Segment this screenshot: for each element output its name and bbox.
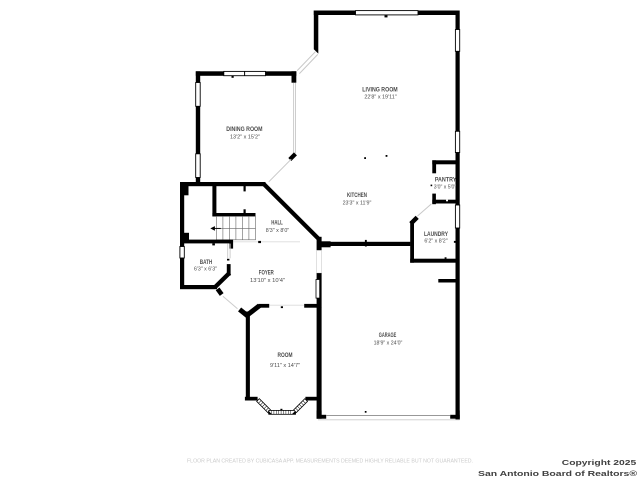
svg-text:San Antonio Board of Realtors®: San Antonio Board of Realtors® bbox=[478, 469, 637, 478]
svg-text:Copyright 2025: Copyright 2025 bbox=[562, 458, 637, 467]
svg-text:LAUNDRY: LAUNDRY bbox=[424, 232, 448, 238]
svg-text:8'3" x 8'0": 8'3" x 8'0" bbox=[266, 228, 289, 234]
svg-text:BATH: BATH bbox=[200, 260, 213, 266]
svg-text:6'2" x 8'2": 6'2" x 8'2" bbox=[424, 239, 447, 245]
svg-text:13'10" x 10'4": 13'10" x 10'4" bbox=[250, 278, 285, 284]
svg-text:18'9" x 24'0": 18'9" x 24'0" bbox=[374, 341, 403, 347]
svg-text:FOYER: FOYER bbox=[259, 271, 274, 277]
svg-text:9'11" x 14'7": 9'11" x 14'7" bbox=[270, 363, 300, 369]
svg-text:DINING ROOM: DINING ROOM bbox=[226, 127, 262, 133]
svg-text:23'3" x 11'9": 23'3" x 11'9" bbox=[343, 201, 372, 207]
svg-text:6'3" x 6'3": 6'3" x 6'3" bbox=[194, 267, 217, 273]
svg-text:PANTRY: PANTRY bbox=[435, 178, 457, 184]
svg-text:22'8" x 19'11": 22'8" x 19'11" bbox=[364, 95, 396, 101]
svg-text:HALL: HALL bbox=[271, 221, 283, 227]
svg-text:13'2" x 15'2": 13'2" x 15'2" bbox=[230, 135, 260, 141]
svg-text:GARAGE: GARAGE bbox=[379, 333, 397, 339]
svg-text:FLOOR PLAN CREATED BY CUBICASA: FLOOR PLAN CREATED BY CUBICASA APP. MEAS… bbox=[187, 459, 473, 465]
svg-text:3'0" x 5'0": 3'0" x 5'0" bbox=[434, 184, 457, 190]
svg-text:KITCHEN: KITCHEN bbox=[347, 193, 367, 199]
svg-text:LIVING ROOM: LIVING ROOM bbox=[362, 88, 397, 94]
svg-text:ROOM: ROOM bbox=[278, 353, 293, 359]
